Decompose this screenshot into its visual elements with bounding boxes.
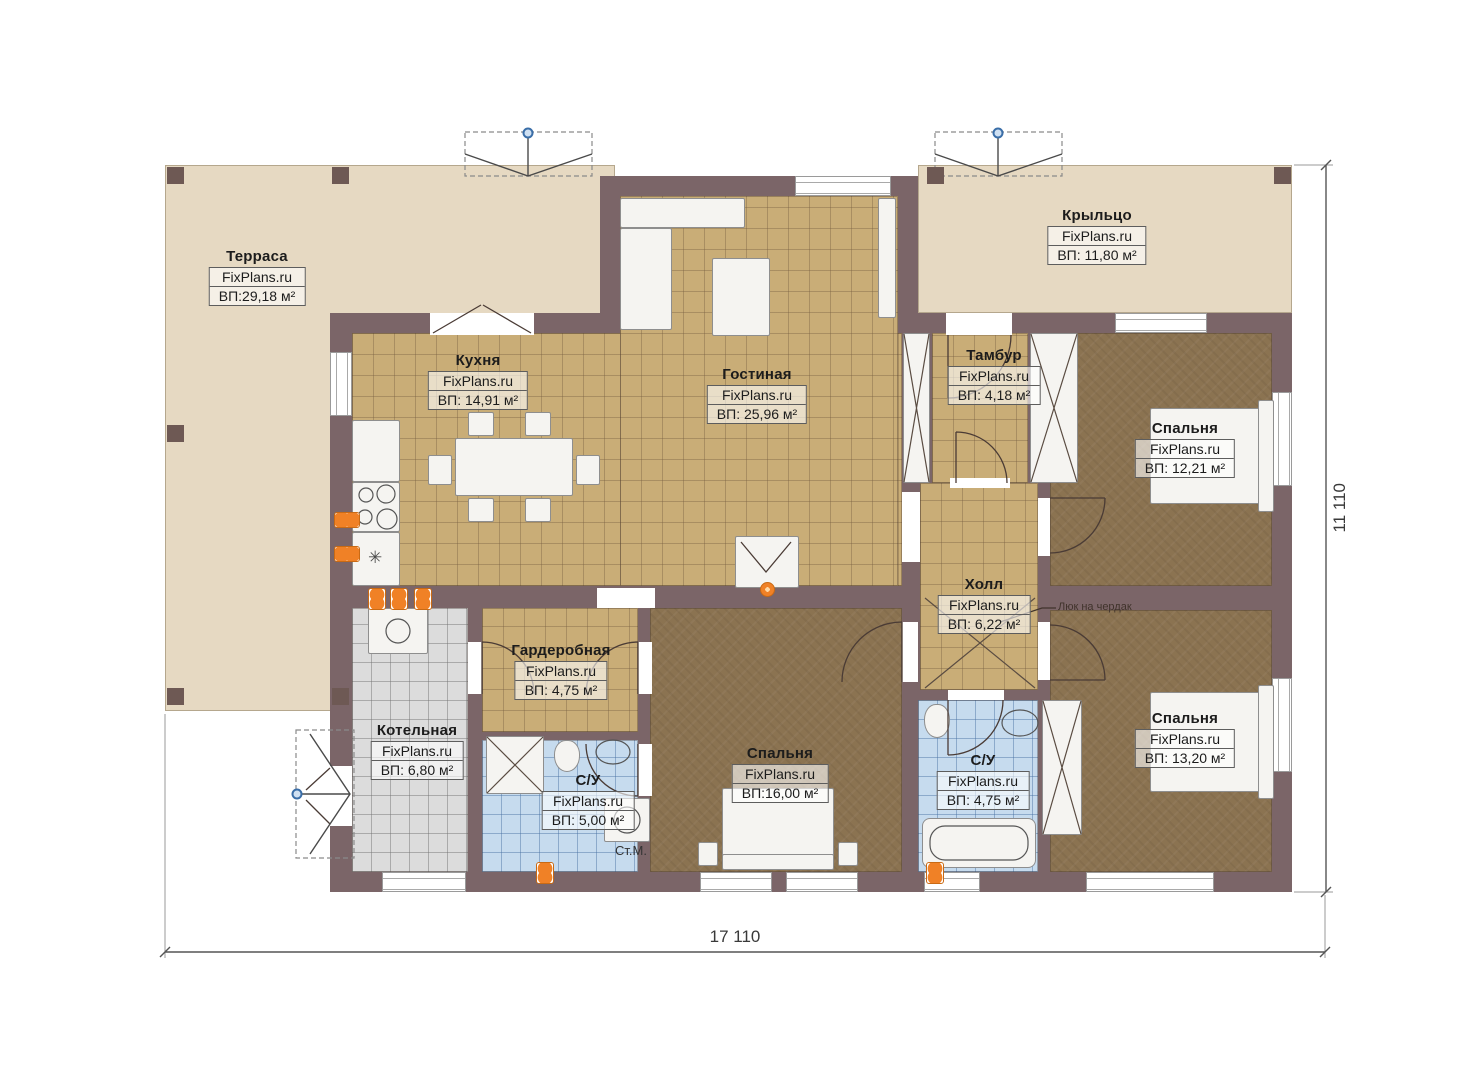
window-bedroom-mid-south-2	[786, 872, 858, 892]
room-name: Спальня	[1135, 420, 1235, 437]
room-label-terrace: Терраса FixPlans.ru ВП:29,18 м²	[209, 248, 306, 306]
room-label-bedroom-bottomright: Спальня FixPlans.ru ВП: 13,20 м²	[1135, 710, 1235, 768]
room-name: Тамбур	[948, 347, 1041, 364]
room-label-porch: Крыльцо FixPlans.ru ВП: 11,80 м²	[1047, 207, 1146, 265]
room-label-kitchen: Кухня FixPlans.ru ВП: 14,91 м²	[428, 352, 528, 410]
boiler-unit	[368, 608, 428, 654]
radiator	[926, 862, 944, 884]
window-living-top	[795, 176, 891, 196]
brand-watermark: FixPlans.ru	[949, 367, 1040, 386]
room-name: С/У	[542, 772, 635, 789]
room-name: Гардеробная	[511, 642, 610, 659]
brand-watermark: FixPlans.ru	[372, 742, 463, 761]
door-gap-terrace-kitchen	[430, 313, 534, 335]
room-name: Крыльцо	[1047, 207, 1146, 224]
sink-drain-symbol: ✳	[368, 548, 382, 568]
room-area: ВП: 4,75 м²	[938, 791, 1029, 809]
toilet-left	[554, 740, 580, 772]
window-east-top	[1272, 392, 1292, 486]
window-bedroom-bottomright-south	[1086, 872, 1214, 892]
room-label-bedroom-mid: Спальня FixPlans.ru ВП:16,00 м²	[732, 745, 829, 803]
room-label-bath-right: С/У FixPlans.ru ВП: 4,75 м²	[937, 752, 1030, 810]
room-area: ВП: 4,75 м²	[516, 681, 607, 699]
dimension-vertical: 11 110	[1330, 483, 1350, 532]
radiator	[334, 512, 360, 528]
room-name: Гостиная	[707, 366, 807, 383]
radiator	[414, 588, 432, 610]
radiator	[368, 588, 386, 610]
window-boiler-south	[382, 872, 466, 892]
sofa-top	[620, 198, 745, 228]
porch-pillar	[1274, 167, 1291, 184]
bathtub	[922, 818, 1036, 868]
terrace-pillar	[167, 167, 184, 184]
room-area: ВП: 11,80 м²	[1048, 246, 1145, 264]
room-area: ВП:29,18 м²	[210, 287, 305, 305]
brand-watermark: FixPlans.ru	[543, 792, 634, 811]
dining-chair	[525, 498, 551, 522]
room-label-hall: Холл FixPlans.ru ВП: 6,22 м²	[938, 576, 1031, 634]
dining-chair	[468, 498, 494, 522]
radiator	[334, 546, 360, 562]
room-label-boiler: Котельная FixPlans.ru ВП: 6,80 м²	[371, 722, 464, 780]
brand-watermark: FixPlans.ru	[429, 372, 527, 391]
radiator	[390, 588, 408, 610]
nightstand	[838, 842, 858, 866]
door-gap-porch-vestibule	[946, 313, 1012, 335]
closet-vestibule-left	[903, 333, 930, 483]
brand-watermark: FixPlans.ru	[210, 268, 305, 287]
room-area: ВП: 6,80 м²	[372, 761, 463, 779]
room-area: ВП: 12,21 м²	[1136, 459, 1234, 477]
room-label-wardrobe: Гардеробная FixPlans.ru ВП: 4,75 м²	[511, 642, 610, 700]
brand-watermark: FixPlans.ru	[938, 772, 1029, 791]
brand-watermark: FixPlans.ru	[708, 386, 806, 405]
sofa-side	[620, 228, 672, 330]
room-area: ВП: 25,96 м²	[708, 405, 806, 423]
room-name: С/У	[937, 752, 1030, 769]
washing-machine-label: Ст.М.	[605, 843, 657, 858]
dining-chair	[468, 412, 494, 436]
brand-watermark: FixPlans.ru	[1136, 730, 1234, 749]
attic-hatch-note: Люк на чердак	[1058, 601, 1132, 613]
bed-headboard-bottomright	[1258, 685, 1274, 799]
window-kitchen-west	[330, 352, 352, 416]
door-gap-boiler-exterior	[330, 766, 352, 826]
coffee-table	[712, 258, 770, 336]
dining-table	[455, 438, 573, 496]
door-gap-hall-bedroom-bottomright	[1038, 622, 1050, 680]
door-gap-wardrobe-left	[468, 642, 482, 694]
floor-plan: ✳ Терраса FixPlans.ru ВП:29,18 м² Крыльц…	[0, 0, 1474, 1080]
bed-headboard-mid	[722, 854, 834, 870]
door-gap-hall-bedroom-mid	[902, 622, 918, 682]
shower	[486, 736, 544, 794]
room-name: Спальня	[1135, 710, 1235, 727]
radiator	[536, 862, 554, 884]
opening-living-hall	[902, 492, 920, 562]
dimension-horizontal: 17 110	[710, 927, 761, 947]
room-area: ВП: 5,00 м²	[543, 811, 634, 829]
dining-chair	[525, 412, 551, 436]
toilet-right	[924, 704, 950, 738]
window-bedroom-mid-south-1	[700, 872, 772, 892]
closet-bedroom-bottomright	[1042, 700, 1082, 835]
brand-watermark: FixPlans.ru	[733, 765, 828, 784]
room-label-vestibule: Тамбур FixPlans.ru ВП: 4,18 м²	[948, 347, 1041, 405]
terrace-pillar	[332, 167, 349, 184]
room-label-living: Гостиная FixPlans.ru ВП: 25,96 м²	[707, 366, 807, 424]
fireplace	[735, 536, 799, 588]
tv-unit	[878, 198, 896, 318]
kitchen-cabinet	[352, 420, 400, 482]
door-gap-vestibule-hall	[950, 478, 1010, 488]
door-gap-wardrobe-right	[638, 642, 652, 694]
door-gap-hall-bedroom-topright	[1038, 498, 1050, 556]
room-label-bath-left: С/У FixPlans.ru ВП: 5,00 м²	[542, 772, 635, 830]
room-area: ВП: 6,22 м²	[939, 615, 1030, 633]
door-gap-bath-left	[638, 744, 652, 796]
brand-watermark: FixPlans.ru	[1048, 227, 1145, 246]
door-gap-hall-bath-right	[948, 690, 1004, 700]
room-area: ВП:16,00 м²	[733, 784, 828, 802]
room-name: Терраса	[209, 248, 306, 265]
opening-kitchen-corridor	[597, 588, 655, 608]
room-name: Кухня	[428, 352, 528, 369]
brand-watermark: FixPlans.ru	[516, 662, 607, 681]
fireplace-vent	[760, 582, 775, 597]
dining-chair	[428, 455, 452, 485]
nightstand	[698, 842, 718, 866]
porch-pillar	[927, 167, 944, 184]
brand-watermark: FixPlans.ru	[1136, 440, 1234, 459]
terrace-pillar	[167, 688, 184, 705]
room-name: Холл	[938, 576, 1031, 593]
room-area: ВП: 14,91 м²	[429, 391, 527, 409]
window-bedroom-topright	[1115, 313, 1207, 333]
room-label-bedroom-topright: Спальня FixPlans.ru ВП: 12,21 м²	[1135, 420, 1235, 478]
room-name: Спальня	[732, 745, 829, 762]
dining-chair	[576, 455, 600, 485]
room-area: ВП: 4,18 м²	[949, 386, 1040, 404]
room-name: Котельная	[371, 722, 464, 739]
window-east-bottom	[1272, 678, 1292, 772]
terrace-pillar	[332, 688, 349, 705]
brand-watermark: FixPlans.ru	[939, 596, 1030, 615]
terrace-pillar	[167, 425, 184, 442]
bed-headboard-topright	[1258, 400, 1274, 512]
room-area: ВП: 13,20 м²	[1136, 749, 1234, 767]
